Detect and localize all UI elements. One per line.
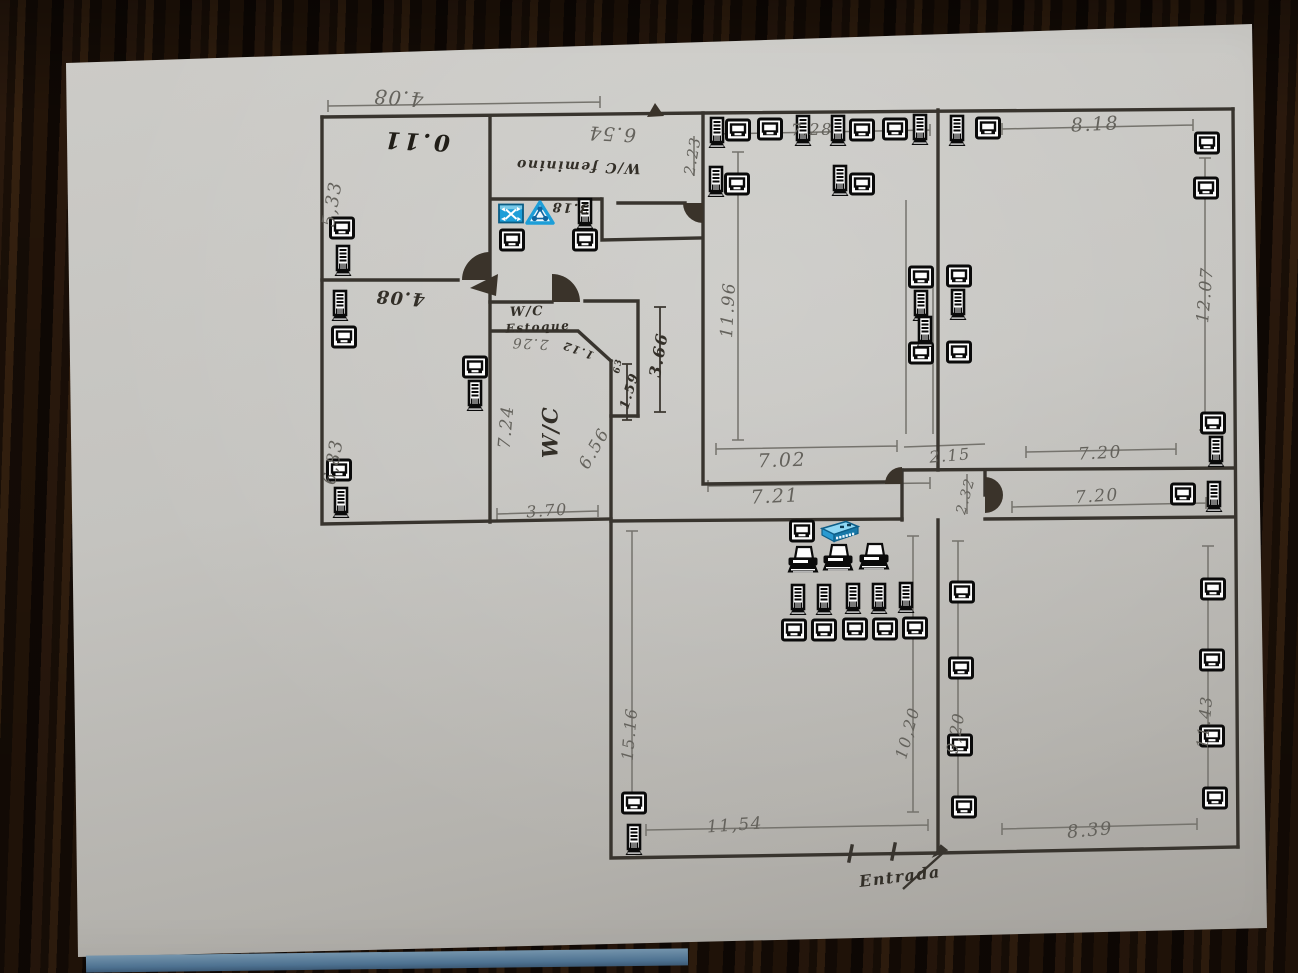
computer-tower-icon <box>815 584 834 617</box>
computer-tower-icon <box>870 583 889 616</box>
computer-tower-icon <box>1205 481 1224 514</box>
computer-tower-icon <box>844 583 863 616</box>
dimension-label: 8.18 <box>1070 114 1119 136</box>
dimension-label: 3.18 <box>551 200 589 215</box>
computer-monitor-icon <box>842 618 868 641</box>
computer-monitor-icon <box>724 173 750 196</box>
computer-monitor-icon <box>572 229 598 252</box>
computer-tower-icon <box>332 487 351 520</box>
computer-tower-icon <box>897 582 916 615</box>
printer-icon <box>786 546 820 575</box>
dimension-label: 6.54 <box>587 122 636 144</box>
computer-monitor-icon <box>757 118 783 141</box>
computer-monitor-icon <box>882 118 908 141</box>
computer-monitor-icon <box>1194 132 1220 155</box>
computer-monitor-icon <box>948 657 974 680</box>
computer-monitor-icon <box>621 792 647 815</box>
computer-tower-icon <box>625 824 644 857</box>
dimension-label: 12.07 <box>1195 266 1217 323</box>
dimension-label: 4.08 <box>372 86 424 109</box>
computer-monitor-icon <box>499 229 525 252</box>
computer-monitor-icon <box>811 619 837 642</box>
computer-monitor-icon <box>725 119 751 142</box>
dimension-label: W/C <box>540 406 561 458</box>
computer-monitor-icon <box>781 619 807 642</box>
computer-monitor-icon <box>1193 177 1219 200</box>
computer-monitor-icon <box>1200 412 1226 435</box>
photo-of-floorplan: 4.080.115,336.54W/C feminino2.233.184.08… <box>0 0 1298 973</box>
dimension-label: W/C feminino <box>515 157 640 175</box>
computer-monitor-icon <box>1202 787 1228 810</box>
network-switch-icon <box>819 519 861 544</box>
dimension-label: 0.11 <box>381 128 450 155</box>
dimension-label: Estoque <box>505 319 570 334</box>
computer-tower-icon <box>334 245 353 278</box>
computer-monitor-icon <box>946 341 972 364</box>
dimension-label: 7.21 <box>750 486 799 508</box>
computer-monitor-icon <box>1199 649 1225 672</box>
dimension-label: 7.24 <box>497 404 518 449</box>
router-icon <box>498 200 525 227</box>
computer-monitor-icon <box>462 356 488 379</box>
printer-icon <box>857 543 891 572</box>
computer-tower-icon <box>331 290 350 323</box>
dimension-label: 2.15 <box>929 446 972 466</box>
computer-monitor-icon <box>975 117 1001 140</box>
computer-tower-icon <box>949 289 968 322</box>
dimension-label: 11,54 <box>706 816 763 837</box>
dimension-label: 11.96 <box>719 282 739 339</box>
computer-tower-icon <box>708 117 727 150</box>
printer-icon <box>821 544 855 573</box>
dimension-label: 4.08 <box>375 286 426 307</box>
dimension-label: 2.26 <box>511 335 549 351</box>
dimension-label: 11.43 <box>1195 695 1216 750</box>
computer-tower-icon <box>911 114 930 147</box>
computer-tower-icon <box>831 165 850 198</box>
dimension-label: 7.28 <box>791 122 833 139</box>
dimension-label: 7.20 <box>1078 444 1123 463</box>
computer-monitor-icon <box>902 617 928 640</box>
dimension-label: 7.02 <box>758 451 807 472</box>
dimension-label: 3.70 <box>526 502 569 521</box>
computer-monitor-icon <box>951 796 977 819</box>
computer-tower-icon <box>466 380 485 413</box>
computer-monitor-icon <box>946 265 972 288</box>
computer-monitor-icon <box>908 266 934 289</box>
computer-monitor-icon <box>331 326 357 349</box>
computer-tower-icon <box>948 115 967 148</box>
computer-tower-icon <box>789 584 808 617</box>
computer-monitor-icon <box>872 618 898 641</box>
dimension-label: 7.20 <box>1075 487 1120 507</box>
computer-tower-icon <box>1207 436 1226 469</box>
computer-monitor-icon <box>849 173 875 196</box>
computer-monitor-icon <box>789 520 815 543</box>
computer-tower-icon <box>916 316 935 349</box>
dimension-label: W/C <box>510 305 545 319</box>
dimension-label: 8.39 <box>1066 820 1113 842</box>
dimension-label: 15.16 <box>620 707 641 762</box>
computer-monitor-icon <box>1170 483 1196 506</box>
computer-monitor-icon <box>1200 578 1226 601</box>
computer-monitor-icon <box>849 119 875 142</box>
computer-tower-icon <box>707 166 726 199</box>
computer-monitor-icon <box>949 581 975 604</box>
